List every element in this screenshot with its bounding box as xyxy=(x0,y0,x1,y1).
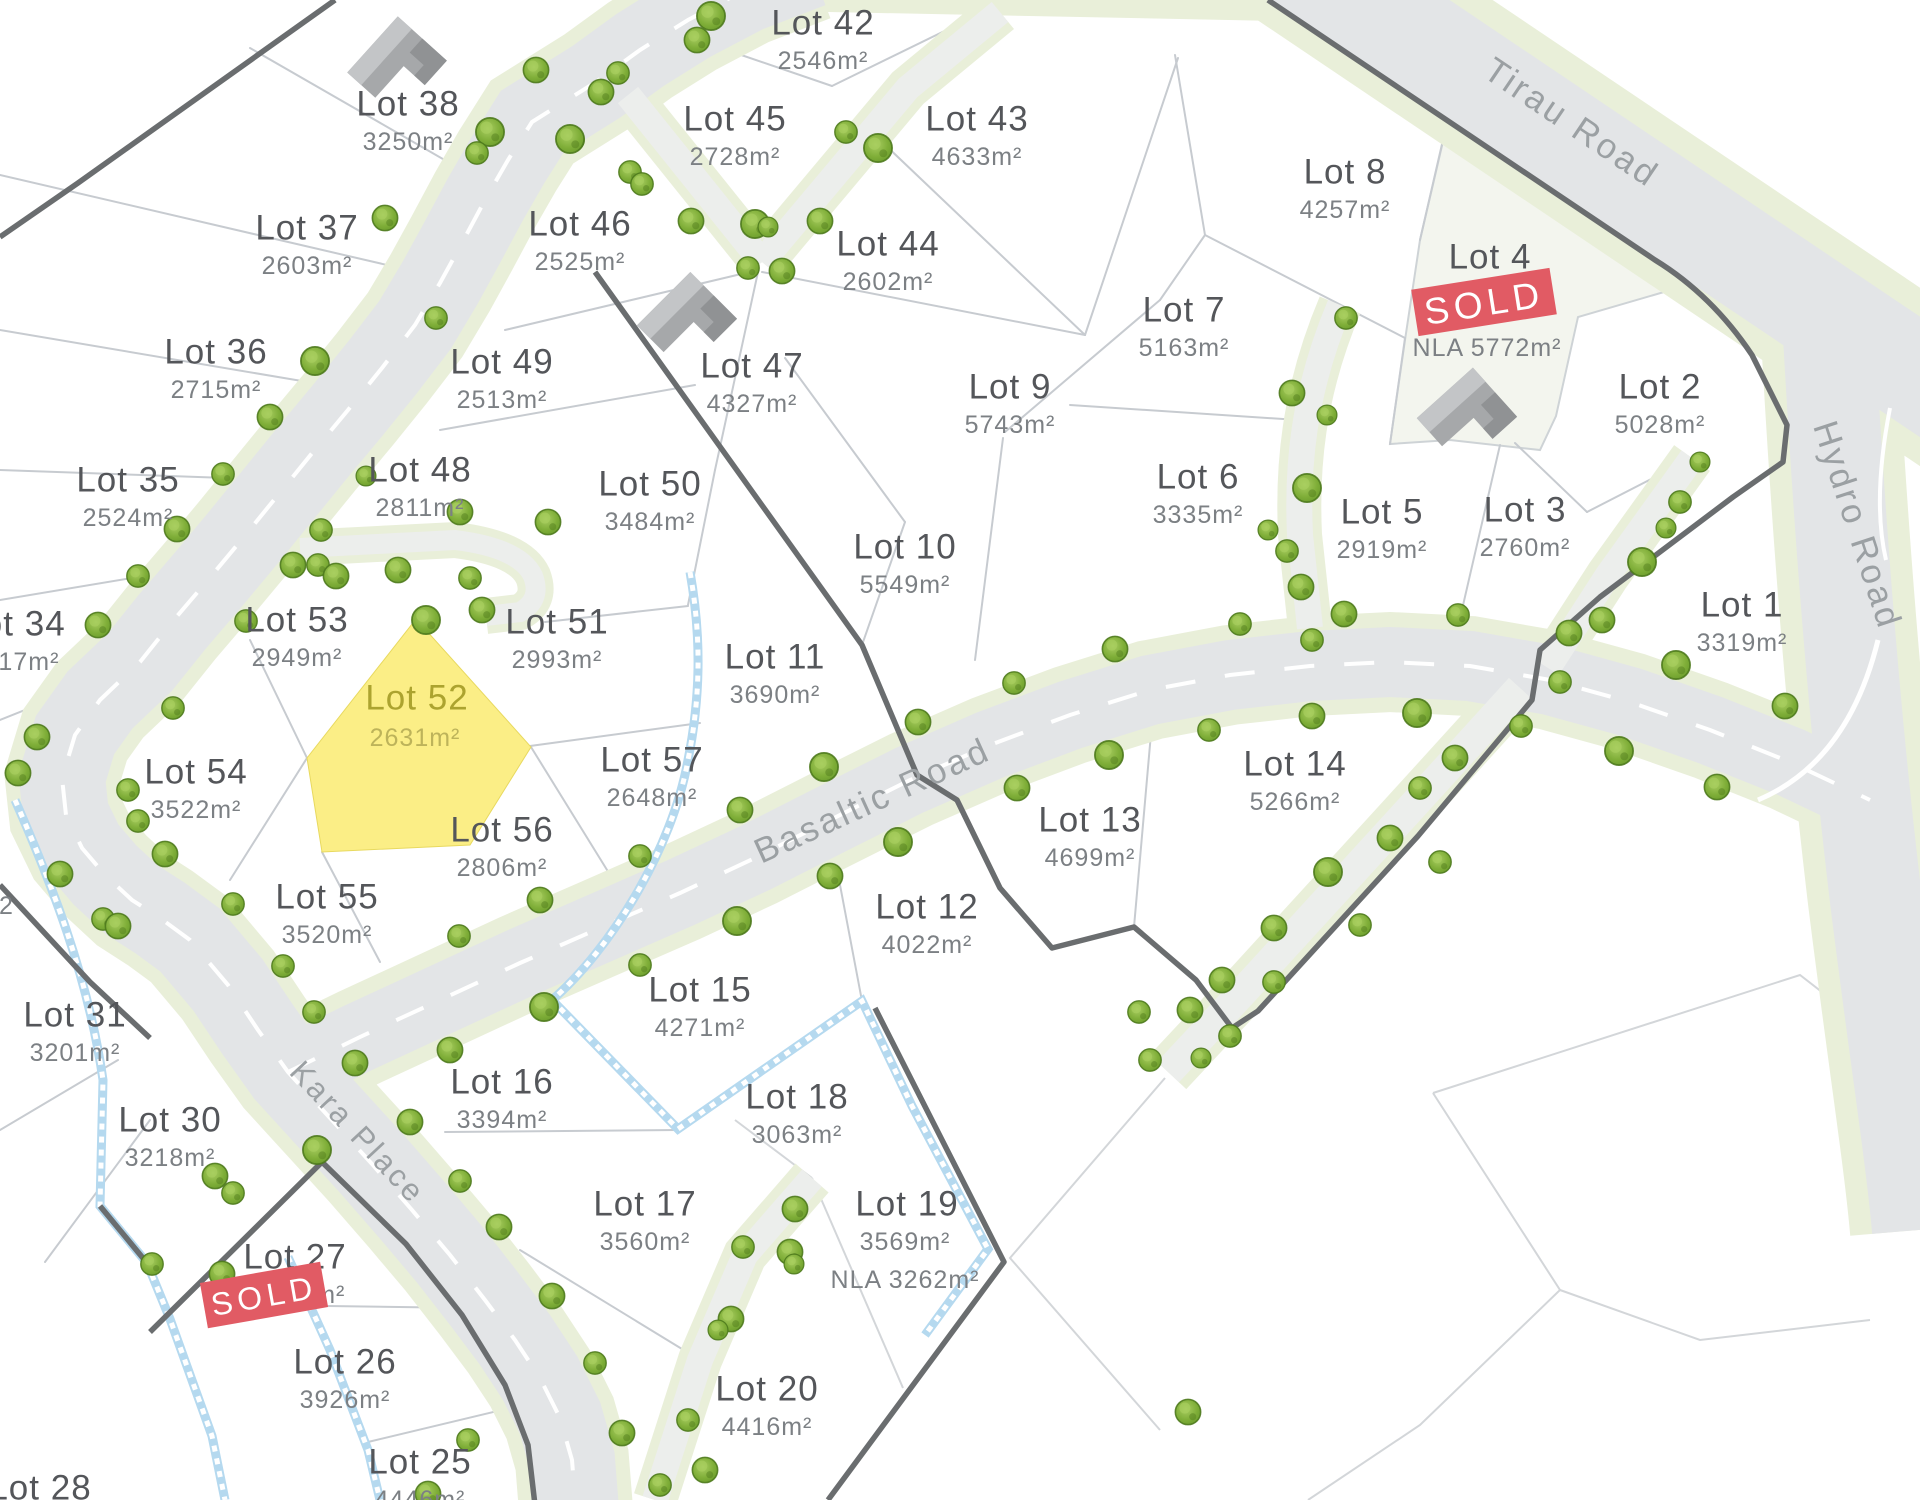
svg-text:2715m²: 2715m² xyxy=(171,376,262,404)
svg-text:3569m²: 3569m² xyxy=(860,1228,951,1256)
svg-text:4022m²: 4022m² xyxy=(882,931,973,959)
svg-text:Lot 38: Lot 38 xyxy=(356,84,459,123)
svg-text:Lot 8: Lot 8 xyxy=(1304,152,1387,191)
svg-text:Lot 2: Lot 2 xyxy=(1619,367,1702,406)
svg-text:3520m²: 3520m² xyxy=(282,921,373,949)
svg-text:Lot 42: Lot 42 xyxy=(771,3,874,42)
svg-text:Lot 4: Lot 4 xyxy=(1449,237,1532,276)
svg-text:3250m²: 3250m² xyxy=(363,128,454,156)
svg-text:2917m²: 2917m² xyxy=(0,648,59,676)
svg-text:3201m²: 3201m² xyxy=(30,1039,121,1067)
svg-text:Lot 31: Lot 31 xyxy=(23,995,126,1034)
svg-text:Lot 55: Lot 55 xyxy=(275,877,378,916)
svg-text:3522m²: 3522m² xyxy=(151,796,242,824)
svg-text:4699m²: 4699m² xyxy=(1045,844,1136,872)
svg-text:Lot 13: Lot 13 xyxy=(1038,800,1141,839)
svg-text:Lot 20: Lot 20 xyxy=(715,1369,818,1408)
svg-text:Lot 1: Lot 1 xyxy=(1701,585,1784,624)
svg-text:Lot 15: Lot 15 xyxy=(648,970,751,1009)
svg-text:3926m²: 3926m² xyxy=(300,1386,391,1414)
svg-text:2760m²: 2760m² xyxy=(1480,534,1571,562)
svg-text:5266m²: 5266m² xyxy=(1250,788,1341,816)
svg-text:Lot 19: Lot 19 xyxy=(855,1184,958,1223)
svg-text:Lot 57: Lot 57 xyxy=(600,740,703,779)
svg-text:Lot 12: Lot 12 xyxy=(875,887,978,926)
svg-text:Lot 17: Lot 17 xyxy=(593,1184,696,1223)
svg-text:2513m²: 2513m² xyxy=(457,386,548,414)
svg-text:4257m²: 4257m² xyxy=(1300,196,1391,224)
svg-text:4416m²: 4416m² xyxy=(722,1413,813,1441)
svg-text:Lot 56: Lot 56 xyxy=(450,810,553,849)
svg-text:Lot 34: Lot 34 xyxy=(0,604,66,643)
svg-text:Lot 52: Lot 52 xyxy=(365,678,468,717)
svg-text:Lot 36: Lot 36 xyxy=(164,332,267,371)
svg-text:5743m²: 5743m² xyxy=(965,411,1056,439)
svg-text:Lot 43: Lot 43 xyxy=(925,99,1028,138)
svg-text:Lot 54: Lot 54 xyxy=(144,752,247,791)
svg-text:2525m²: 2525m² xyxy=(535,248,626,276)
svg-text:2546m²: 2546m² xyxy=(778,47,869,75)
svg-text:Lot 10: Lot 10 xyxy=(853,527,956,566)
svg-text:Lot 46: Lot 46 xyxy=(528,204,631,243)
svg-text:NLA 5772m²: NLA 5772m² xyxy=(1413,334,1562,362)
svg-text:2811m²: 2811m² xyxy=(376,494,465,522)
svg-text:2602m²: 2602m² xyxy=(843,268,934,296)
svg-text:2919m²: 2919m² xyxy=(1337,536,1428,564)
svg-text:Lot 30: Lot 30 xyxy=(118,1100,221,1139)
svg-text:3218m²: 3218m² xyxy=(125,1144,216,1172)
svg-text:3335m²: 3335m² xyxy=(1153,501,1244,529)
svg-text:Lot 37: Lot 37 xyxy=(255,208,358,247)
svg-text:Lot 11: Lot 11 xyxy=(725,637,826,676)
svg-text:Lot 49: Lot 49 xyxy=(450,342,553,381)
svg-text:Lot 44: Lot 44 xyxy=(836,224,939,263)
svg-text:5163m²: 5163m² xyxy=(1139,334,1230,362)
svg-text:Lot 14: Lot 14 xyxy=(1243,744,1346,783)
svg-text:2993m²: 2993m² xyxy=(512,646,603,674)
svg-text:3063m²: 3063m² xyxy=(752,1121,843,1149)
svg-text:Lot 26: Lot 26 xyxy=(293,1342,396,1381)
svg-text:NLA 3262m²: NLA 3262m² xyxy=(831,1266,980,1294)
svg-text:2949m²: 2949m² xyxy=(252,644,343,672)
svg-text:4271m²: 4271m² xyxy=(655,1014,746,1042)
svg-text:Lot 6: Lot 6 xyxy=(1157,457,1240,496)
svg-text:Lot 3: Lot 3 xyxy=(1484,490,1567,529)
svg-text:Lot 47: Lot 47 xyxy=(700,346,803,385)
svg-text:2524m²: 2524m² xyxy=(83,504,174,532)
svg-text:3319m²: 3319m² xyxy=(1697,629,1788,657)
svg-text:3394m²: 3394m² xyxy=(457,1106,548,1134)
svg-text:Lot 16: Lot 16 xyxy=(450,1062,553,1101)
svg-text:Lot 53: Lot 53 xyxy=(245,600,348,639)
svg-text:Lot 9: Lot 9 xyxy=(969,367,1052,406)
svg-text:4446m²: 4446m² xyxy=(375,1486,466,1500)
svg-text:3560m²: 3560m² xyxy=(600,1228,691,1256)
svg-text:2648m²: 2648m² xyxy=(607,784,698,812)
svg-text:4633m²: 4633m² xyxy=(932,143,1023,171)
svg-text:Lot 45: Lot 45 xyxy=(683,99,786,138)
svg-text:2631m²: 2631m² xyxy=(370,724,461,752)
svg-text:5028m²: 5028m² xyxy=(1615,411,1706,439)
svg-text:2603m²: 2603m² xyxy=(262,252,353,280)
svg-text:Lot 5: Lot 5 xyxy=(1341,492,1424,531)
svg-text:2806m²: 2806m² xyxy=(457,854,548,882)
svg-text:Lot 48: Lot 48 xyxy=(368,450,471,489)
svg-text:Lot 18: Lot 18 xyxy=(745,1077,848,1116)
svg-text:2: 2 xyxy=(0,892,13,920)
svg-text:Lot 51: Lot 51 xyxy=(505,602,608,641)
svg-text:3690m²: 3690m² xyxy=(730,681,821,709)
svg-text:Lot 7: Lot 7 xyxy=(1143,290,1226,329)
svg-text:5549m²: 5549m² xyxy=(860,571,951,599)
svg-text:Lot 25: Lot 25 xyxy=(368,1442,471,1481)
svg-text:2728m²: 2728m² xyxy=(690,143,781,171)
svg-text:4327m²: 4327m² xyxy=(707,390,798,418)
svg-text:3484m²: 3484m² xyxy=(605,508,696,536)
svg-text:Lot 35: Lot 35 xyxy=(76,460,179,499)
svg-text:Lot 50: Lot 50 xyxy=(598,464,701,503)
svg-text:Lot 28: Lot 28 xyxy=(0,1468,92,1500)
